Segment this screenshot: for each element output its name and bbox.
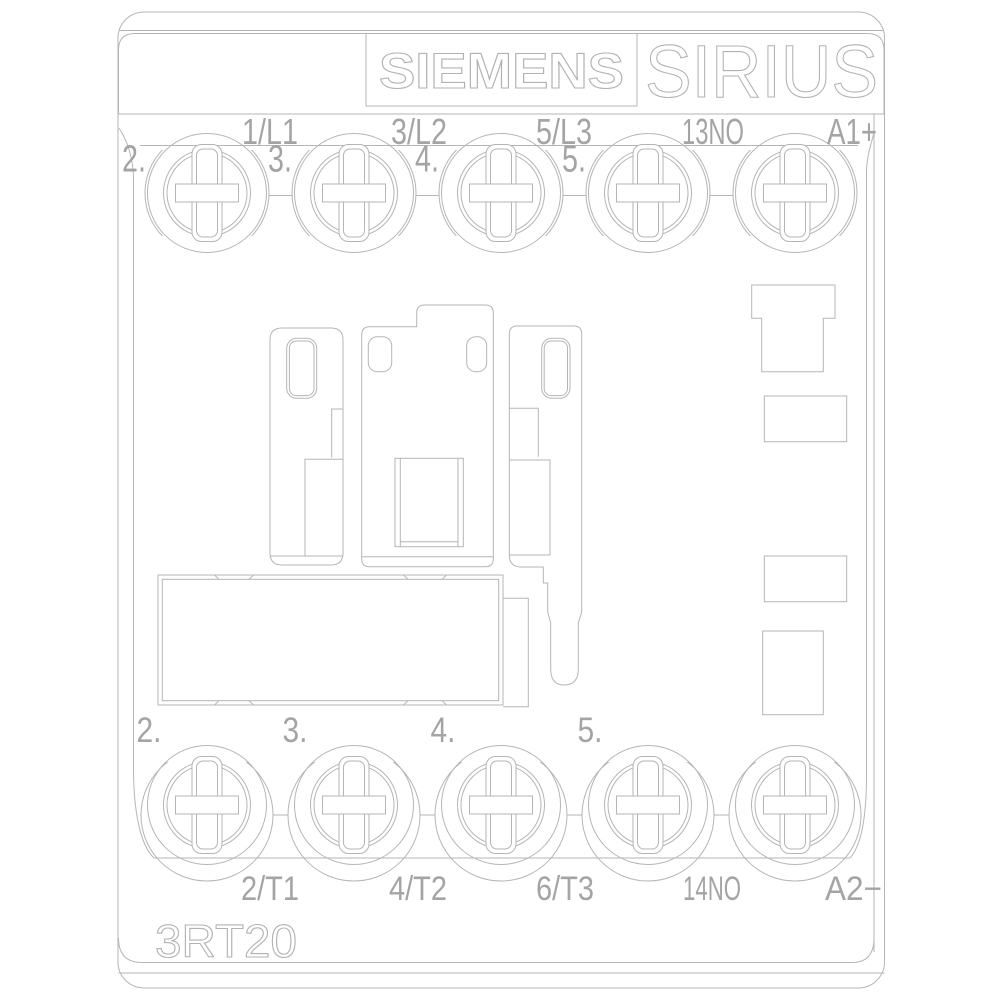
center-mechanism xyxy=(158,305,582,707)
model-number: 3RT20 xyxy=(155,915,297,967)
terminal-label-bottom-1: 2/T1 xyxy=(241,870,299,908)
center-window xyxy=(395,458,463,546)
clamp-number-top-1: 2. xyxy=(122,139,146,181)
bottom-terminal-row xyxy=(141,746,861,882)
terminal-label-top-4: 13NO xyxy=(682,111,744,152)
center-slot-right xyxy=(467,337,487,372)
label-plate xyxy=(158,575,528,707)
release-lever xyxy=(509,326,581,685)
clamp-number-top-2: 3. xyxy=(268,139,292,181)
clamp-number-bottom-4: 5. xyxy=(578,711,603,750)
center-contact-carrier xyxy=(362,305,494,567)
right-plunger-slot xyxy=(542,338,570,398)
side-molding-rect-2 xyxy=(764,556,846,602)
terminal-label-bottom-3: 6/T3 xyxy=(536,870,594,908)
terminal-label-bottom-5: A2− xyxy=(825,870,882,908)
contactor-face-drawing: SIEMENS SIRIUS 1/L1 3/L2 5/L3 13NO A1+ 2… xyxy=(0,0,1000,1000)
siemens-logo: SIEMENS xyxy=(379,43,624,99)
clamp-number-bottom-2: 3. xyxy=(283,711,308,750)
left-plunger xyxy=(270,328,343,565)
right-face-edge xyxy=(850,132,874,858)
sirius-logo: SIRIUS xyxy=(645,30,878,113)
side-molding-rect-3 xyxy=(763,631,824,715)
branding-area: SIEMENS SIRIUS xyxy=(366,30,878,113)
terminal-label-bottom-2: 4/T2 xyxy=(389,870,447,908)
left-plunger-slot xyxy=(287,338,317,398)
center-slot-left xyxy=(368,337,391,372)
clamp-number-top-4: 5. xyxy=(562,139,586,181)
right-side-moldings xyxy=(752,285,847,715)
side-molding-tee xyxy=(752,285,835,372)
clamp-number-bottom-3: 4. xyxy=(431,711,456,750)
label-plate-tab xyxy=(503,598,528,706)
clamp-number-top-3: 4. xyxy=(415,139,439,181)
side-molding-rect-1 xyxy=(764,396,846,442)
right-plunger xyxy=(509,326,581,685)
clamp-number-bottom-1: 2. xyxy=(137,711,162,750)
terminal-label-top-5: A1+ xyxy=(827,111,877,152)
contactor-product-drawing: SIEMENS SIRIUS 1/L1 3/L2 5/L3 13NO A1+ 2… xyxy=(0,0,1000,1000)
terminal-label-bottom-4: 14NO xyxy=(683,870,741,908)
